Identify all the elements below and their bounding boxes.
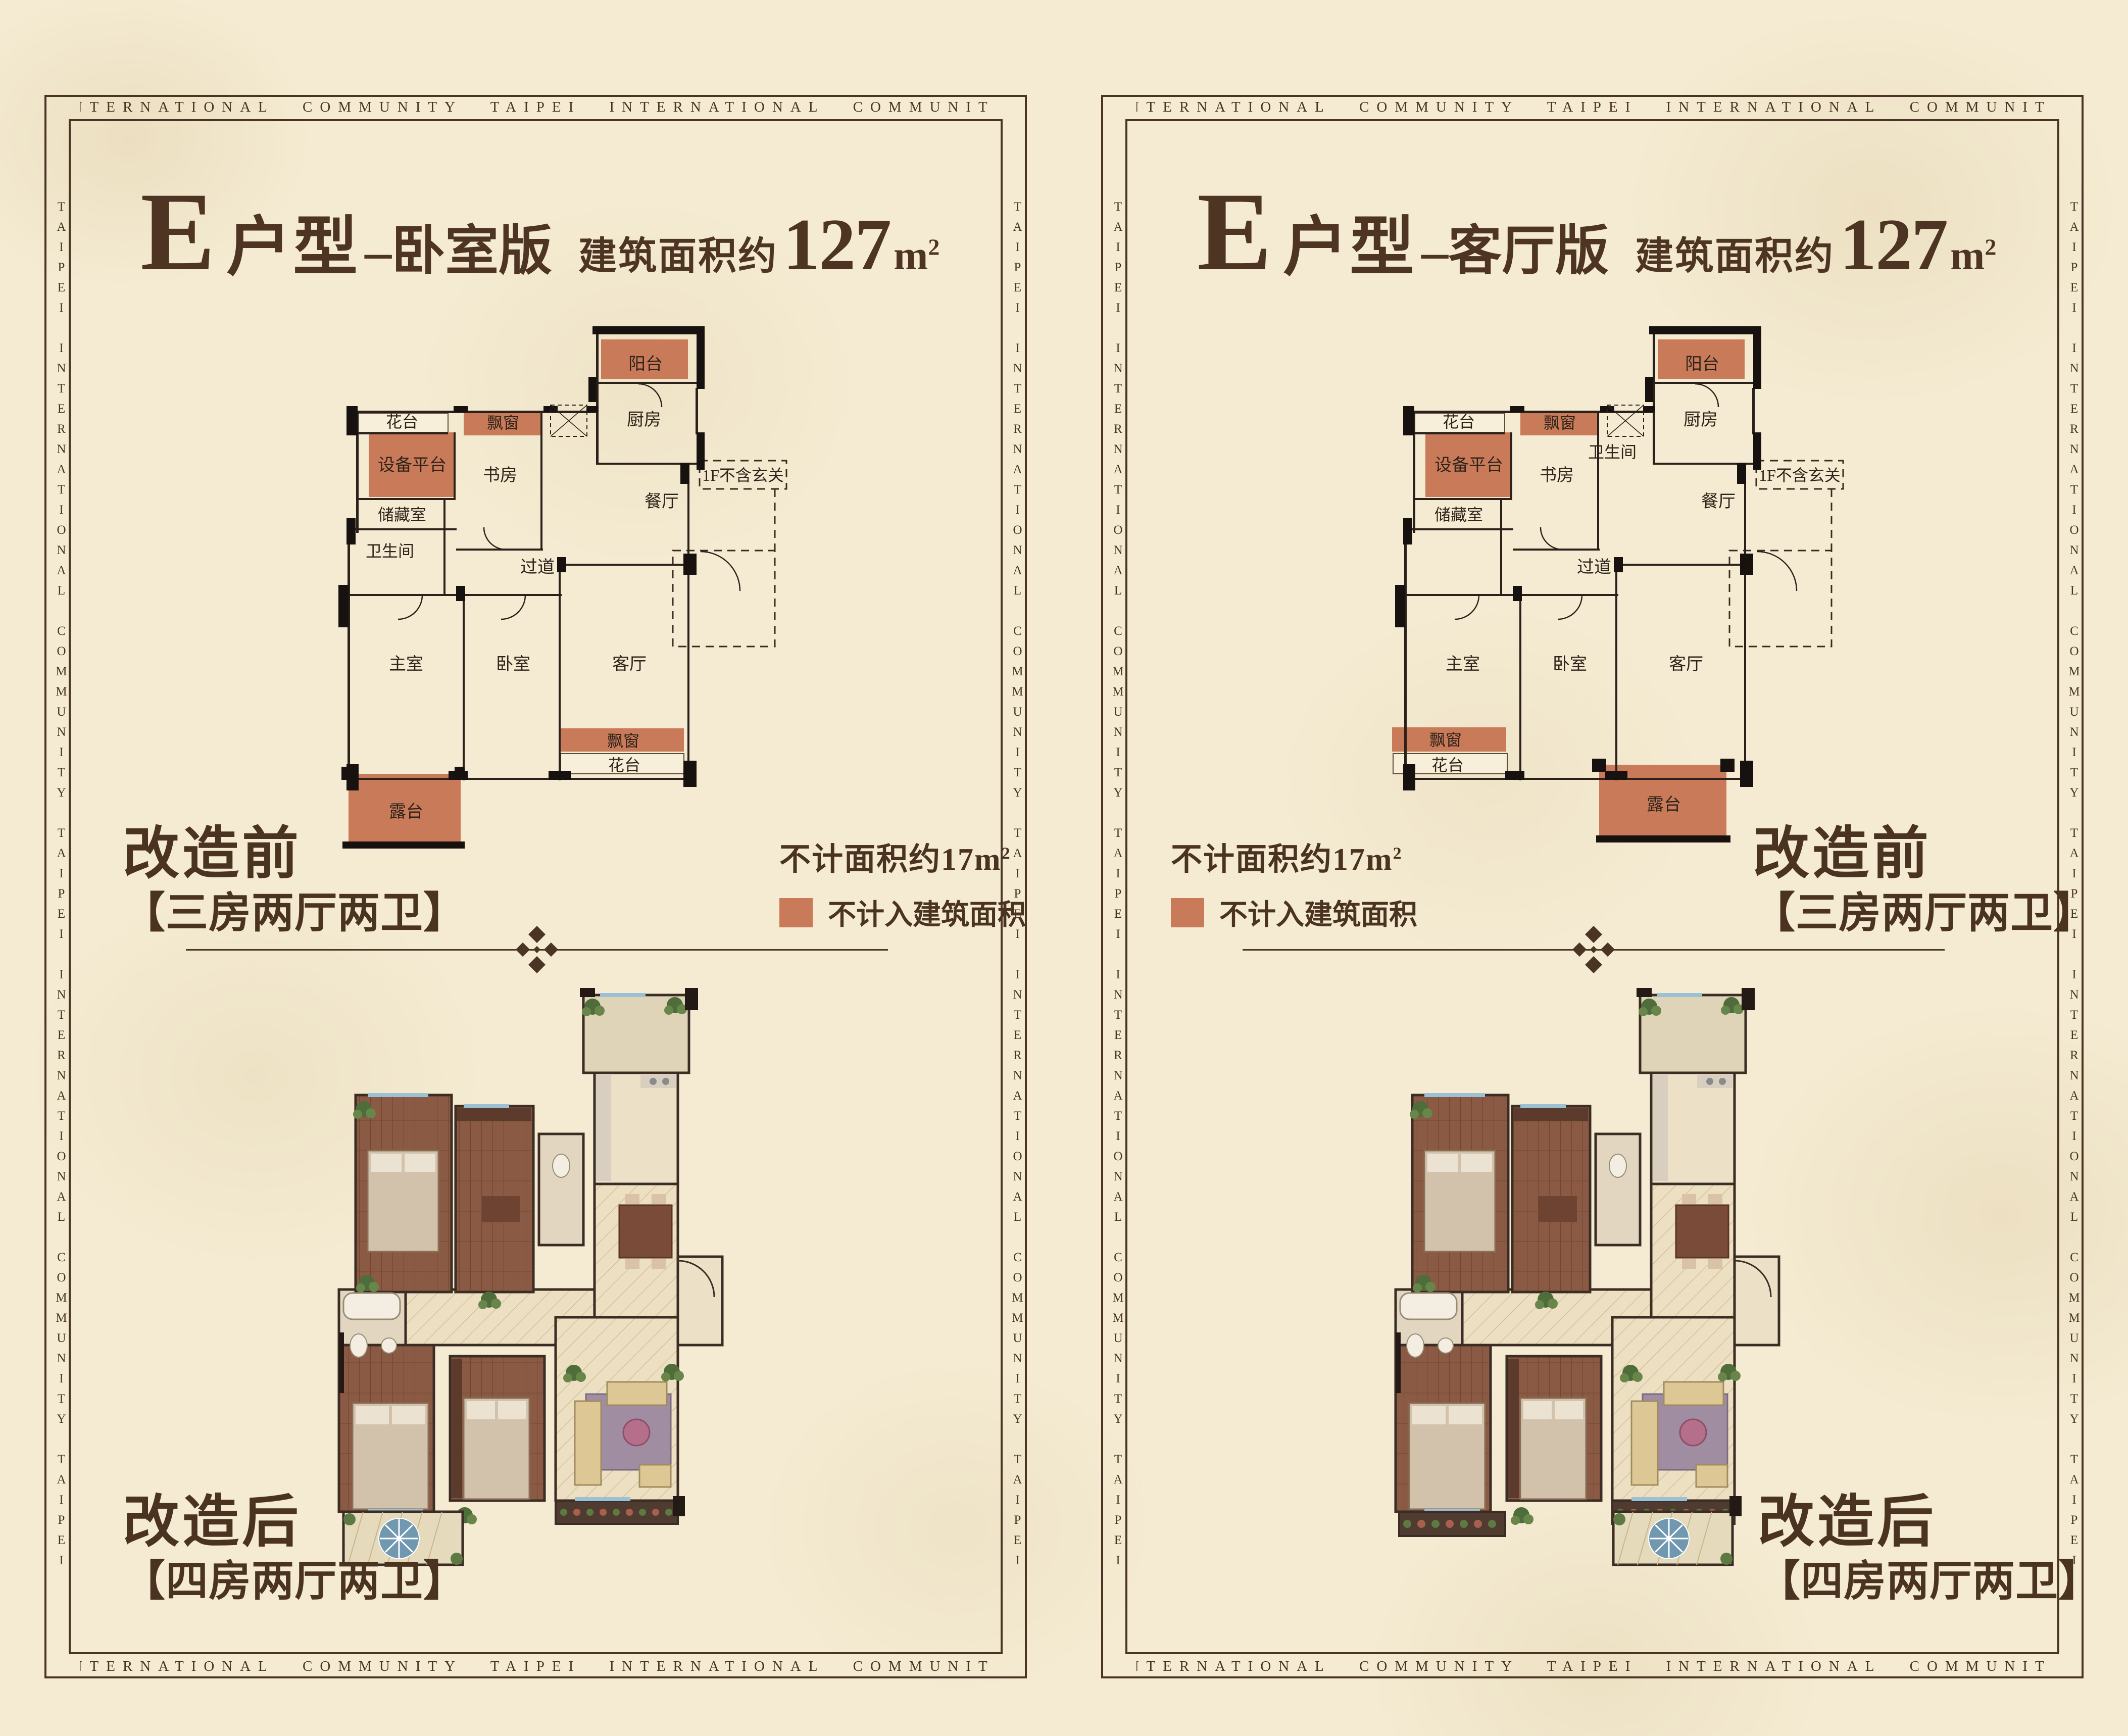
room-label: 厨房: [1684, 410, 1718, 429]
room-label: 设备平台: [378, 456, 447, 475]
legend-label: 不计入建筑面积: [828, 892, 1026, 933]
after-label: 改造后: [123, 1493, 466, 1553]
room-label: 花台: [1431, 756, 1464, 774]
before-block: 改造前 【三房两厅两卫】: [123, 825, 466, 936]
unit-letter: E: [1197, 176, 1272, 288]
area-unit: m2: [894, 232, 939, 279]
room-label: 过道: [520, 558, 555, 577]
border-text-top: TAIPEI INTERNATIONAL COMMUNITY TAIPEI IN…: [1136, 96, 2048, 118]
room-label: 花台: [608, 756, 640, 774]
after-layout: 【四房两厅两卫】: [123, 1560, 466, 1604]
room-label: 设备平台: [1434, 456, 1503, 475]
room-label: 储藏室: [378, 506, 426, 524]
legend-swatch: [779, 898, 813, 927]
area-value: 127: [783, 202, 890, 287]
room-label: 卫生间: [1588, 443, 1637, 461]
excluded-area-note: 不计面积约17m2: [1171, 833, 1403, 879]
border-text-top: TAIPEI INTERNATIONAL COMMUNITY TAIPEI IN…: [80, 96, 992, 118]
border-text-left: TAIPEI INTERNATIONAL COMMUNITY TAIPEI IN…: [47, 130, 68, 1643]
legend-swatch: [1171, 898, 1204, 927]
room-label: 花台: [386, 413, 418, 431]
after-label: 改造后: [1758, 1493, 2084, 1553]
section-divider: [186, 949, 888, 951]
legend: 不计入建筑面积: [1171, 892, 1417, 933]
room-label: 阳台: [628, 355, 663, 374]
unit-variant: –卧室版: [365, 207, 552, 285]
room-label: 花台: [1443, 413, 1475, 431]
unit-letter: E: [140, 176, 215, 288]
room-label: 书房: [483, 466, 517, 485]
room-label: 飘窗: [1429, 731, 1462, 749]
brochure-page: TAIPEI INTERNATIONAL COMMUNITY TAIPEI IN…: [0, 0, 2128, 1736]
room-label: 飘窗: [1544, 414, 1576, 432]
unit-type-label: 户型: [1283, 194, 1416, 288]
room-label: 餐厅: [1701, 492, 1736, 511]
room-label: 主室: [1446, 655, 1480, 674]
page-title: E 户型 –卧室版 建筑面积约 127 m2: [140, 176, 939, 288]
room-label: 卫生间: [366, 542, 414, 560]
page-title: E 户型 –客厅版 建筑面积约 127 m2: [1197, 176, 1996, 288]
room-label: 1F不含玄关: [1759, 466, 1841, 484]
room-label: 客厅: [1669, 655, 1703, 674]
room-label: 飘窗: [607, 732, 639, 750]
border-text-right: TAIPEI INTERNATIONAL COMMUNITY TAIPEI IN…: [1003, 130, 1024, 1643]
border-text-bottom: TAIPEI INTERNATIONAL COMMUNITY TAIPEI IN…: [80, 1655, 992, 1677]
room-label: 1F不含玄关: [702, 466, 784, 484]
after-block: 改造后 【四房两厅两卫】: [1758, 1493, 2084, 1604]
area-value: 127: [1840, 202, 1947, 287]
room-label: 书房: [1540, 466, 1574, 485]
excluded-area-note: 不计面积约17m2: [779, 833, 1011, 879]
area-prefix: 建筑面积约: [1635, 225, 1835, 280]
legend-label: 不计入建筑面积: [1219, 892, 1417, 933]
room-label: 卧室: [1553, 655, 1587, 674]
room-label: 阳台: [1685, 355, 1719, 374]
unit-type-label: 户型: [226, 194, 360, 288]
before-layout: 【三房两厅两卫】: [1753, 891, 2084, 936]
room-label: 客厅: [612, 655, 647, 674]
room-label: 飘窗: [487, 414, 519, 432]
panel-living-room-version: TAIPEI INTERNATIONAL COMMUNITY TAIPEI IN…: [1101, 95, 2084, 1678]
rendered-floor-plan: [337, 984, 893, 1570]
rendered-floor-plan: [1394, 984, 1950, 1570]
before-label: 改造前: [123, 825, 466, 884]
before-block: 改造前 【三房两厅两卫】: [1753, 825, 2084, 936]
after-block: 改造后 【四房两厅两卫】: [123, 1493, 466, 1604]
room-label: 主室: [389, 655, 423, 674]
before-label: 改造前: [1753, 825, 2084, 884]
room-label: 露台: [389, 802, 423, 821]
before-layout: 【三房两厅两卫】: [123, 891, 466, 936]
room-label: 储藏室: [1434, 506, 1483, 524]
border-text-left: TAIPEI INTERNATIONAL COMMUNITY TAIPEI IN…: [1104, 130, 1125, 1643]
schematic-floor-plan: 阳台花台飘窗厨房设备平台书房储藏室卫生间1F不含玄关餐厅过道主室卧室客厅飘窗花台…: [1385, 313, 1920, 859]
after-layout: 【四房两厅两卫】: [1758, 1560, 2084, 1604]
schematic-floor-plan: 阳台花台飘窗厨房设备平台书房储藏室卫生间1F不含玄关餐厅过道主室卧室客厅飘窗花台…: [328, 313, 864, 859]
area-unit: m2: [1950, 232, 1996, 279]
room-label: 厨房: [627, 410, 661, 429]
room-label: 过道: [1577, 558, 1611, 577]
panel-bedroom-version: TAIPEI INTERNATIONAL COMMUNITY TAIPEI IN…: [44, 95, 1027, 1678]
legend: 不计入建筑面积: [779, 892, 1026, 933]
room-label: 卧室: [496, 655, 530, 674]
room-label: 露台: [1647, 795, 1681, 814]
unit-variant: –客厅版: [1421, 207, 1609, 285]
border-text-bottom: TAIPEI INTERNATIONAL COMMUNITY TAIPEI IN…: [1136, 1655, 2048, 1677]
section-divider: [1243, 949, 1945, 951]
room-label: 餐厅: [645, 492, 679, 511]
area-prefix: 建筑面积约: [578, 225, 778, 280]
